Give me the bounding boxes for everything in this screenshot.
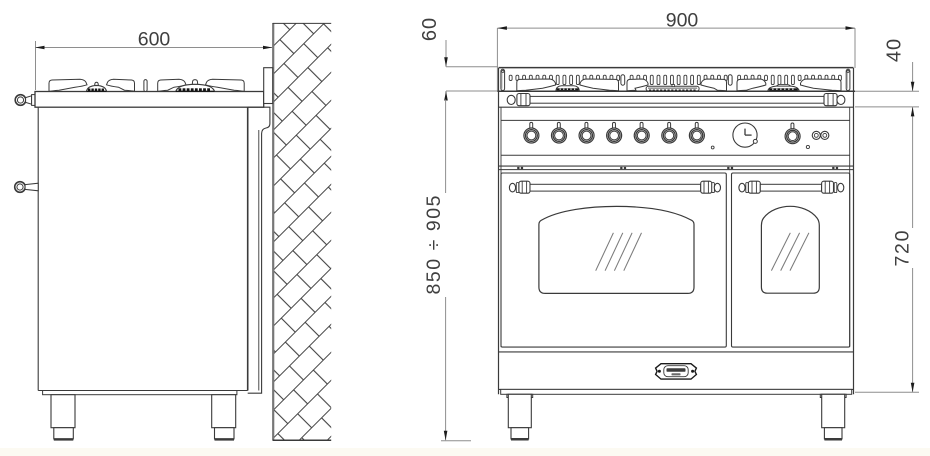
svg-text:40: 40	[884, 38, 906, 62]
svg-text:60: 60	[419, 17, 441, 41]
svg-text:720: 720	[892, 230, 914, 266]
svg-text:850 ÷ 905: 850 ÷ 905	[423, 195, 445, 294]
